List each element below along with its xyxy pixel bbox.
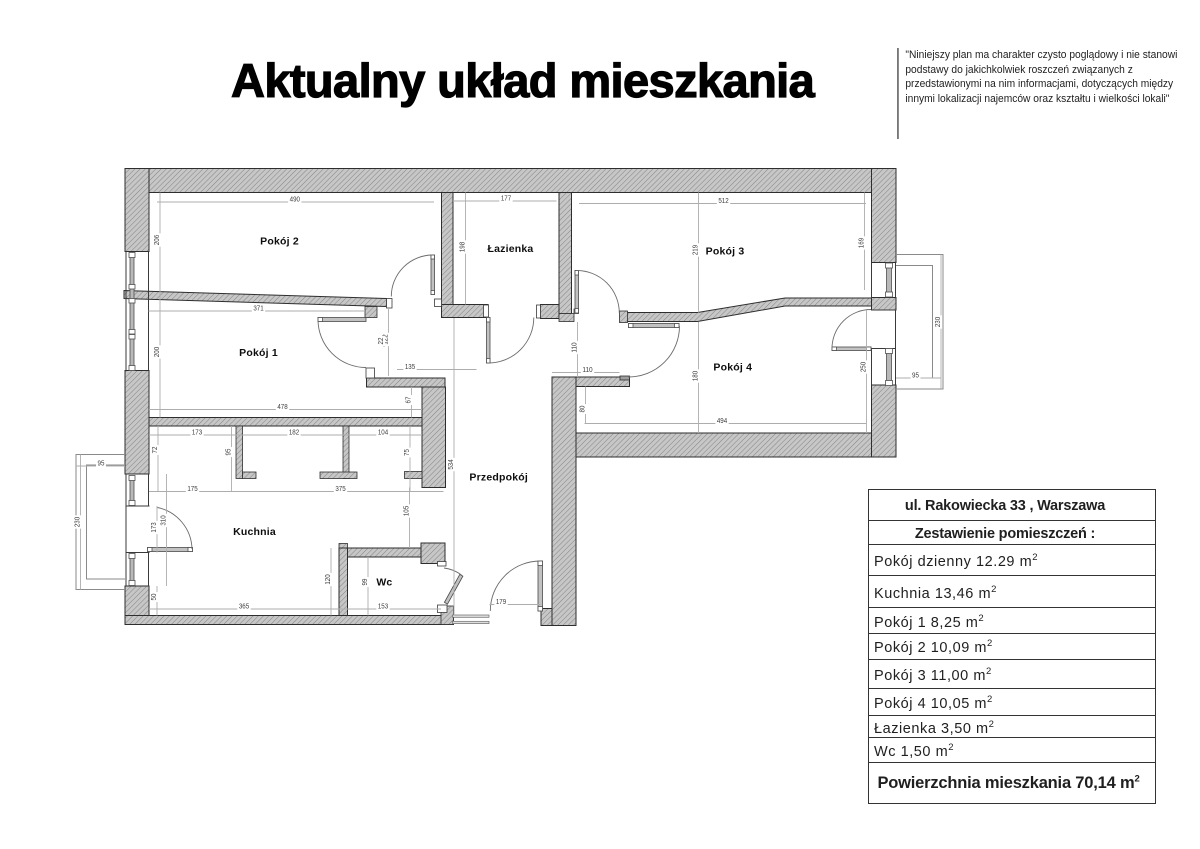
svg-text:110: 110 xyxy=(582,367,592,374)
svg-text:Pokój 4: Pokój 4 xyxy=(713,362,752,374)
svg-text:534: 534 xyxy=(448,459,455,469)
svg-text:206: 206 xyxy=(154,235,161,245)
svg-text:Pokój 2: Pokój 2 xyxy=(260,236,299,248)
svg-text:105: 105 xyxy=(404,506,411,516)
svg-text:230: 230 xyxy=(75,517,82,527)
svg-text:50: 50 xyxy=(151,593,158,600)
svg-text:371: 371 xyxy=(253,305,263,312)
svg-text:99: 99 xyxy=(362,578,369,585)
svg-text:512: 512 xyxy=(718,198,728,205)
svg-text:67: 67 xyxy=(406,396,413,403)
svg-text:80: 80 xyxy=(580,405,587,412)
svg-text:478: 478 xyxy=(277,404,287,411)
svg-text:Pokój 3: Pokój 3 xyxy=(706,246,745,258)
svg-text:Przedpokój: Przedpokój xyxy=(469,471,528,483)
svg-text:Pokój 1: Pokój 1 xyxy=(239,347,278,359)
svg-text:110: 110 xyxy=(572,342,579,352)
svg-text:250: 250 xyxy=(861,362,868,372)
svg-text:180: 180 xyxy=(693,371,700,381)
svg-text:179: 179 xyxy=(496,599,506,606)
svg-text:198: 198 xyxy=(460,242,467,252)
svg-text:169: 169 xyxy=(859,238,866,248)
svg-text:494: 494 xyxy=(717,418,727,425)
svg-text:95: 95 xyxy=(226,448,233,455)
svg-text:177: 177 xyxy=(501,195,511,202)
svg-text:490: 490 xyxy=(290,196,300,203)
svg-text:22: 22 xyxy=(378,337,385,344)
svg-text:173: 173 xyxy=(151,522,158,532)
svg-text:182: 182 xyxy=(289,429,299,436)
svg-text:120: 120 xyxy=(325,574,332,584)
svg-text:75: 75 xyxy=(404,449,411,456)
svg-text:72: 72 xyxy=(152,446,159,453)
svg-text:95: 95 xyxy=(98,460,105,467)
svg-text:153: 153 xyxy=(378,603,388,610)
svg-text:200: 200 xyxy=(154,347,161,357)
svg-text:135: 135 xyxy=(405,364,415,371)
svg-text:365: 365 xyxy=(239,603,249,610)
svg-text:Kuchnia: Kuchnia xyxy=(233,526,276,538)
svg-text:95: 95 xyxy=(912,372,919,379)
svg-text:310: 310 xyxy=(161,515,168,525)
svg-text:230: 230 xyxy=(935,317,942,327)
svg-text:104: 104 xyxy=(378,429,388,436)
svg-text:375: 375 xyxy=(335,486,345,493)
svg-text:219: 219 xyxy=(693,245,700,255)
svg-text:Łazienka: Łazienka xyxy=(488,243,534,255)
svg-text:Wc: Wc xyxy=(376,577,392,589)
svg-text:173: 173 xyxy=(192,429,202,436)
svg-text:175: 175 xyxy=(187,486,197,493)
